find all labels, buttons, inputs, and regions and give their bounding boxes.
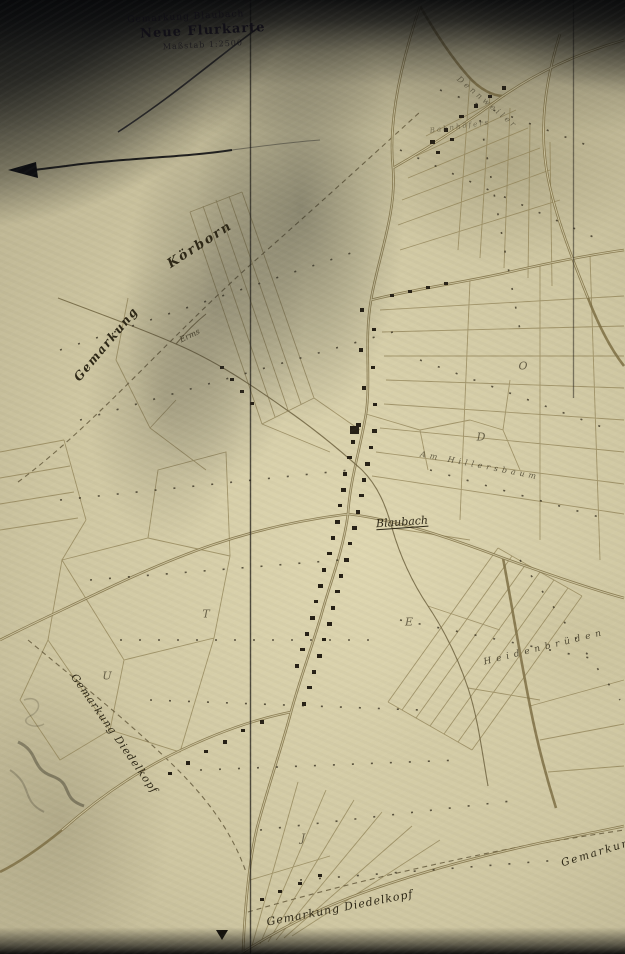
- label-koerborn: Körborn: [165, 219, 235, 271]
- bottom-mark: [216, 930, 228, 940]
- label-gemarkung-left: Gemarkung: [72, 305, 141, 383]
- pencil-scribbles: [10, 699, 84, 812]
- label-am-hillersbaum: Am Hillersbaum: [419, 450, 540, 481]
- crack-arrow: [8, 140, 320, 178]
- parcel-number-marks: [60, 90, 620, 880]
- section-letter: J: [301, 832, 305, 845]
- label-bahnhoefers: Bahnhöfers: [429, 119, 490, 134]
- section-letter: D: [477, 431, 486, 444]
- label-heidenbroeden: Heidenbrüden: [483, 628, 607, 667]
- village-buildings: [168, 86, 506, 901]
- label-erms-stream: Erms: [179, 328, 202, 345]
- label-gemarkung-diedelkopf-left: Gemarkung Diedelkopf: [69, 672, 160, 795]
- parcel-lines: [0, 78, 624, 946]
- section-letter: E: [405, 616, 413, 629]
- section-letter: T: [202, 608, 209, 621]
- boundary-lines: [18, 112, 624, 912]
- label-gemarkung-diedelkopf-bottom: Gemarkung Diedelkopf: [266, 888, 415, 927]
- title-block: Gemarkung Blaubach Neue Flurkarte Maßsta…: [127, 5, 329, 53]
- section-letter: U: [102, 670, 111, 683]
- label-gemarkung-bottom-right: Gemarkung: [560, 835, 625, 869]
- stream: [58, 298, 488, 786]
- map-photo: Gemarkung Blaubach Neue Flurkarte Maßsta…: [0, 0, 625, 954]
- label-village-blaubach: Blaubach: [376, 515, 429, 530]
- section-letter: O: [518, 360, 527, 373]
